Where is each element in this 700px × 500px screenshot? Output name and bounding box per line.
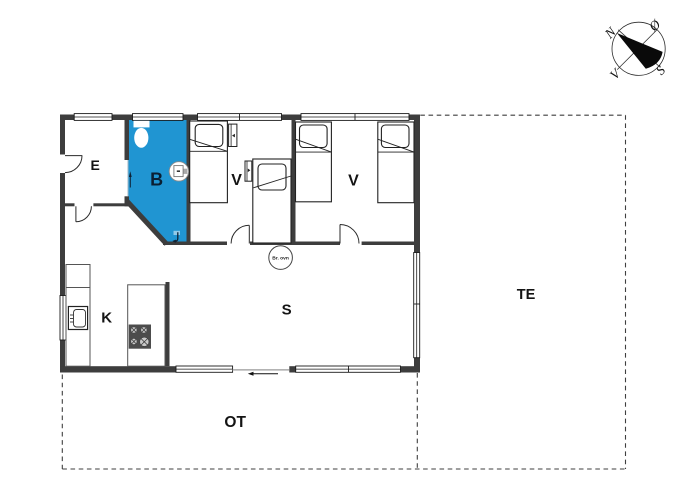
- svg-text:Br. ovn: Br. ovn: [272, 255, 289, 261]
- svg-text:TE: TE: [517, 287, 536, 303]
- svg-text:K: K: [101, 310, 112, 327]
- svg-text:V: V: [231, 172, 242, 189]
- svg-text:E: E: [91, 157, 100, 173]
- svg-text:S: S: [282, 302, 292, 319]
- svg-text:B: B: [150, 169, 163, 189]
- svg-text:V: V: [348, 172, 359, 189]
- svg-text:OT: OT: [224, 414, 246, 431]
